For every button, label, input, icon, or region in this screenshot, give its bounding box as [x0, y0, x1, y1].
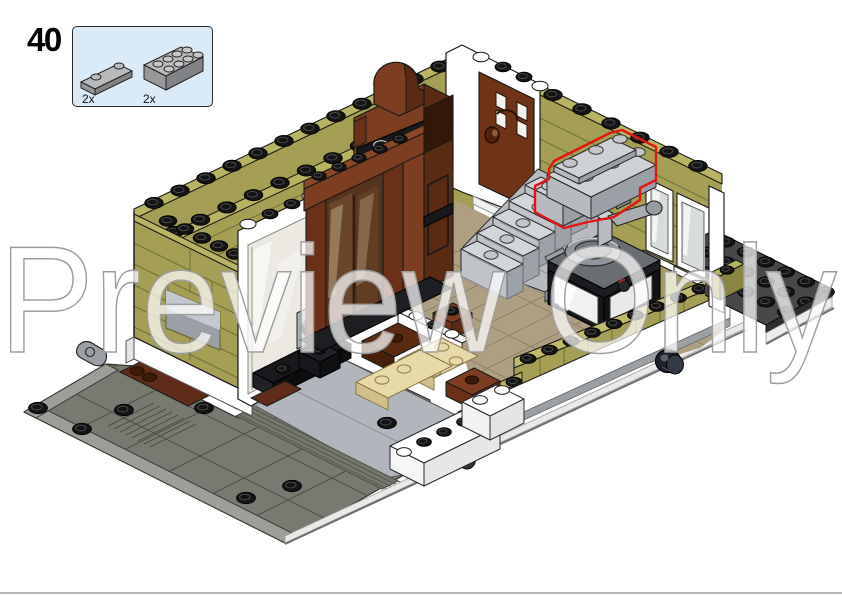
svg-text:Preview Only: Preview Only — [0, 215, 837, 385]
svg-text:2x: 2x — [82, 92, 95, 106]
svg-text:2x: 2x — [143, 92, 156, 106]
